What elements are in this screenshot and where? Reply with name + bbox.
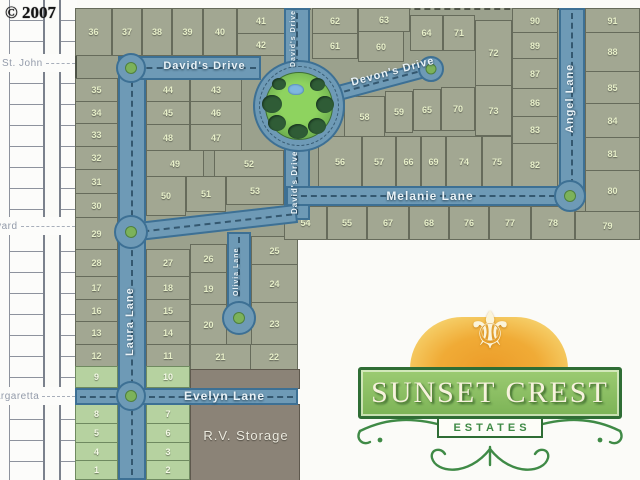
roundabout-island [125, 62, 137, 74]
lot-76: 76 [449, 206, 489, 240]
offsite-street-margaretta: Margaretta [0, 387, 75, 405]
lot-18: 18 [146, 276, 190, 300]
lot-33: 33 [75, 123, 118, 147]
lot-73: 73 [475, 85, 512, 136]
tree-icon [268, 115, 286, 131]
logo-subtitle-box: ESTATES [437, 417, 543, 438]
rv-storage-strip [190, 369, 300, 389]
offsite-street-label: St. John [2, 58, 43, 69]
lot-number: 63 [379, 15, 389, 25]
lot-number: 11 [163, 351, 173, 361]
roundabout-laura-evelyn [116, 381, 146, 411]
lot-20: 20 [190, 304, 227, 345]
lot-number: 90 [530, 16, 540, 26]
offsite-street-label: Boulevard [0, 221, 18, 232]
lot-7: 7 [146, 403, 190, 424]
lot-80: 80 [585, 170, 640, 212]
lot-28: 28 [75, 249, 118, 277]
lot-number: 35 [91, 85, 101, 95]
lot-87: 87 [512, 58, 558, 89]
lot-number: 46 [211, 108, 221, 118]
lot-number: 59 [394, 107, 404, 117]
lot-number: 13 [91, 328, 101, 338]
street-label: David's Drive [152, 60, 257, 72]
lot-44: 44 [146, 78, 190, 102]
lot-number: 25 [269, 246, 279, 256]
street-dash-line [46, 63, 75, 64]
lot-number: 79 [602, 221, 612, 231]
lot-number: 72 [488, 48, 498, 58]
lot-40: 40 [203, 8, 237, 56]
lot-79: 79 [575, 211, 640, 240]
lot-number: 60 [376, 42, 386, 52]
lot-6: 6 [146, 423, 190, 443]
roundabout-island [125, 226, 137, 238]
lot-13: 13 [75, 321, 118, 345]
lot-90: 90 [512, 8, 558, 33]
lot-number: 40 [215, 27, 225, 37]
lot-1: 1 [75, 460, 118, 480]
lot-number: 75 [492, 157, 502, 167]
lot-85: 85 [585, 71, 640, 104]
tree-icon [310, 78, 325, 91]
rv-storage-label: R.V. Storage [196, 428, 296, 443]
lot-23: 23 [251, 302, 298, 345]
lot-number: 66 [403, 157, 413, 167]
lot-number: 86 [530, 98, 540, 108]
lot-number: 7 [165, 409, 170, 419]
lot-55: 55 [327, 206, 367, 240]
tree-icon [272, 78, 286, 90]
logo-title: SUNSET CREST [371, 376, 609, 410]
lot-82: 82 [512, 143, 558, 187]
lot-5: 5 [75, 423, 118, 443]
lot-number: 77 [505, 218, 515, 228]
lot-22: 22 [250, 344, 298, 370]
lot-64: 64 [410, 15, 443, 51]
street-label: Melanie Lane [340, 189, 520, 203]
lot-number: 84 [607, 116, 617, 126]
lot-number: 20 [203, 320, 213, 330]
sunset-crest-logo: ⚜ SUNSET CREST ESTATES [350, 295, 630, 477]
lot-number: 29 [91, 229, 101, 239]
lot-24: 24 [251, 264, 298, 303]
lot-67: 67 [367, 206, 409, 240]
street-label: Laura Lane [124, 268, 136, 376]
lot-70: 70 [441, 87, 475, 131]
lot-number: 83 [530, 125, 540, 135]
lot-number: 15 [163, 306, 173, 316]
lot-71: 71 [443, 15, 475, 51]
lot-15: 15 [146, 299, 190, 322]
lot-58: 58 [344, 96, 385, 137]
lot-8: 8 [75, 403, 118, 424]
tree-icon [316, 96, 334, 113]
roundabout-laura-davids [116, 53, 146, 83]
lot-number: 36 [88, 27, 98, 37]
lot-47: 47 [190, 124, 242, 151]
fountain-icon [288, 84, 304, 95]
lot-number: 33 [91, 130, 101, 140]
street-label: Angel Lane [564, 48, 576, 148]
logo-subtitle: ESTATES [449, 422, 530, 434]
lot-57: 57 [362, 136, 396, 187]
lot-number: 61 [330, 41, 340, 51]
roundabout-laura-boulevard [114, 215, 148, 249]
lot-number: 22 [269, 352, 279, 362]
roundabout-island [125, 390, 137, 402]
lot-number: 28 [91, 258, 101, 268]
lot-number: 34 [91, 108, 101, 118]
lot-number: 41 [256, 16, 266, 26]
lot-16: 16 [75, 299, 118, 322]
culdesac-olivia-lane [222, 301, 256, 335]
lot-29: 29 [75, 217, 118, 250]
lot-number: 51 [201, 189, 211, 199]
tree-icon [288, 124, 308, 139]
street-label: Evelyn Lane [162, 389, 287, 403]
lot-number: 32 [91, 153, 101, 163]
lot-number: 65 [422, 105, 432, 115]
lot-36: 36 [75, 8, 112, 56]
lot-number: 9 [94, 372, 99, 382]
lot-number: 71 [454, 28, 464, 38]
roundabout-melanie-angel [554, 180, 586, 212]
lot-52: 52 [214, 150, 284, 177]
lot-number: 2 [165, 465, 170, 475]
lot-30: 30 [75, 193, 118, 218]
plat-map-scan: St. JohnBoulevardMargaretta 363738394041… [0, 0, 640, 480]
lot-74: 74 [446, 136, 482, 187]
lot-38: 38 [142, 8, 172, 56]
lot-number: 88 [607, 47, 617, 57]
lot-68: 68 [409, 206, 449, 240]
lot-39: 39 [172, 8, 203, 56]
lot-37: 37 [112, 8, 142, 56]
lot-number: 56 [335, 157, 345, 167]
lot-21: 21 [190, 344, 251, 370]
lot-75: 75 [482, 136, 512, 187]
lot-number: 48 [163, 133, 173, 143]
lot-4: 4 [75, 442, 118, 461]
lot-number: 47 [211, 133, 221, 143]
lot-62: 62 [312, 8, 358, 34]
street-label: David's Drive [290, 146, 299, 218]
lot-number: 69 [428, 157, 438, 167]
lot-number: 76 [464, 218, 474, 228]
copyright-text: © 2007 [5, 3, 56, 23]
lot-number: 91 [607, 16, 617, 26]
offsite-block-column-inner [0, 0, 10, 480]
lot-number: 27 [163, 258, 173, 268]
lot-43: 43 [190, 78, 242, 102]
lot-number: 38 [152, 27, 162, 37]
lot-19: 19 [190, 272, 227, 305]
lot-65: 65 [413, 89, 441, 131]
lot-number: 3 [165, 447, 170, 457]
lot-number: 10 [163, 372, 173, 382]
lot-83: 83 [512, 116, 558, 144]
lot-9: 9 [75, 366, 118, 388]
lot-32: 32 [75, 146, 118, 170]
lot-number: 44 [163, 85, 173, 95]
lot-number: 68 [424, 218, 434, 228]
lot-number: 45 [163, 108, 173, 118]
lot-number: 70 [453, 104, 463, 114]
lot-number: 26 [203, 254, 213, 264]
tree-icon [262, 95, 282, 113]
lot-61: 61 [312, 33, 358, 59]
street-dash-line [42, 396, 75, 397]
lot-26: 26 [190, 244, 227, 273]
lot-number: 85 [607, 83, 617, 93]
lot-45: 45 [146, 101, 190, 125]
lot-number: 64 [421, 28, 431, 38]
lot-number: 81 [607, 149, 617, 159]
lot-59: 59 [385, 91, 413, 133]
lot-number: 57 [374, 157, 384, 167]
lot-number: 18 [163, 283, 173, 293]
lot-number: 53 [250, 186, 260, 196]
lot-number: 5 [94, 428, 99, 438]
lot-60: 60 [358, 31, 404, 62]
lot-91: 91 [585, 8, 640, 33]
lot-14: 14 [146, 321, 190, 345]
lot-number: 30 [91, 201, 101, 211]
lot-number: 62 [330, 16, 340, 26]
lot-3: 3 [146, 442, 190, 461]
lot-number: 87 [530, 69, 540, 79]
fleur-de-lis-icon: ⚜ [467, 305, 514, 357]
roundabout-island [564, 190, 576, 202]
lot-25: 25 [251, 236, 298, 265]
offsite-street-st-john: St. John [0, 54, 75, 72]
lot-63: 63 [358, 8, 410, 32]
lot-88: 88 [585, 32, 640, 72]
lot-53: 53 [226, 176, 284, 205]
lot-number: 19 [203, 284, 213, 294]
lot-49: 49 [146, 150, 204, 177]
lot-41: 41 [237, 8, 285, 34]
lot-number: 67 [383, 218, 393, 228]
street-label: Olivia Lane [233, 241, 240, 303]
lot-number: 80 [607, 186, 617, 196]
lot-number: 39 [182, 27, 192, 37]
lot-17: 17 [75, 276, 118, 300]
lot-86: 86 [512, 88, 558, 117]
lot-number: 89 [530, 41, 540, 51]
lot-number: 82 [530, 160, 540, 170]
lot-number: 31 [91, 177, 101, 187]
lot-12: 12 [75, 344, 118, 367]
offsite-street-boulevard: Boulevard [0, 217, 75, 235]
lot-81: 81 [585, 137, 640, 171]
lot-number: 58 [359, 112, 369, 122]
lot-number: 14 [163, 328, 173, 338]
lot-48: 48 [146, 124, 190, 151]
culdesac-island [233, 312, 245, 324]
lot-72: 72 [475, 20, 512, 86]
lot-31: 31 [75, 169, 118, 194]
lot-number: 73 [488, 106, 498, 116]
lot-50: 50 [146, 176, 186, 216]
lot-69: 69 [421, 136, 446, 187]
lot-number: 49 [170, 159, 180, 169]
offsite-street-label: Margaretta [0, 391, 39, 402]
lot-42: 42 [237, 33, 285, 56]
lot-89: 89 [512, 32, 558, 59]
lot-34: 34 [75, 101, 118, 124]
lot-number: 42 [256, 40, 266, 50]
lot-10: 10 [146, 366, 190, 388]
lot-number: 74 [459, 157, 469, 167]
lot-46: 46 [190, 101, 242, 125]
logo-banner: SUNSET CREST [358, 367, 622, 419]
lot-number: 55 [342, 218, 352, 228]
lot-77: 77 [489, 206, 531, 240]
lot-number: 43 [211, 85, 221, 95]
street-label: David's Drive [290, 10, 297, 66]
street-dash-line [21, 226, 75, 227]
lot-number: 50 [161, 191, 171, 201]
lot-66: 66 [396, 136, 421, 187]
lot-35: 35 [75, 78, 118, 102]
lot-number: 78 [548, 218, 558, 228]
lot-number: 4 [94, 447, 99, 457]
lot-number: 24 [269, 279, 279, 289]
lot-11: 11 [146, 344, 190, 367]
lot-number: 21 [215, 352, 225, 362]
lot-number: 12 [91, 351, 101, 361]
lot-number: 16 [91, 306, 101, 316]
lot-number: 1 [94, 465, 99, 475]
lot-84: 84 [585, 103, 640, 138]
lot-number: 23 [269, 319, 279, 329]
lot-number: 8 [94, 409, 99, 419]
lot-number: 17 [91, 283, 101, 293]
lot-2: 2 [146, 460, 190, 480]
lot-number: 37 [122, 27, 132, 37]
lot-number: 6 [165, 428, 170, 438]
tree-icon [308, 118, 326, 134]
lot-27: 27 [146, 249, 190, 277]
lot-51: 51 [186, 176, 226, 212]
lot-number: 52 [244, 159, 254, 169]
